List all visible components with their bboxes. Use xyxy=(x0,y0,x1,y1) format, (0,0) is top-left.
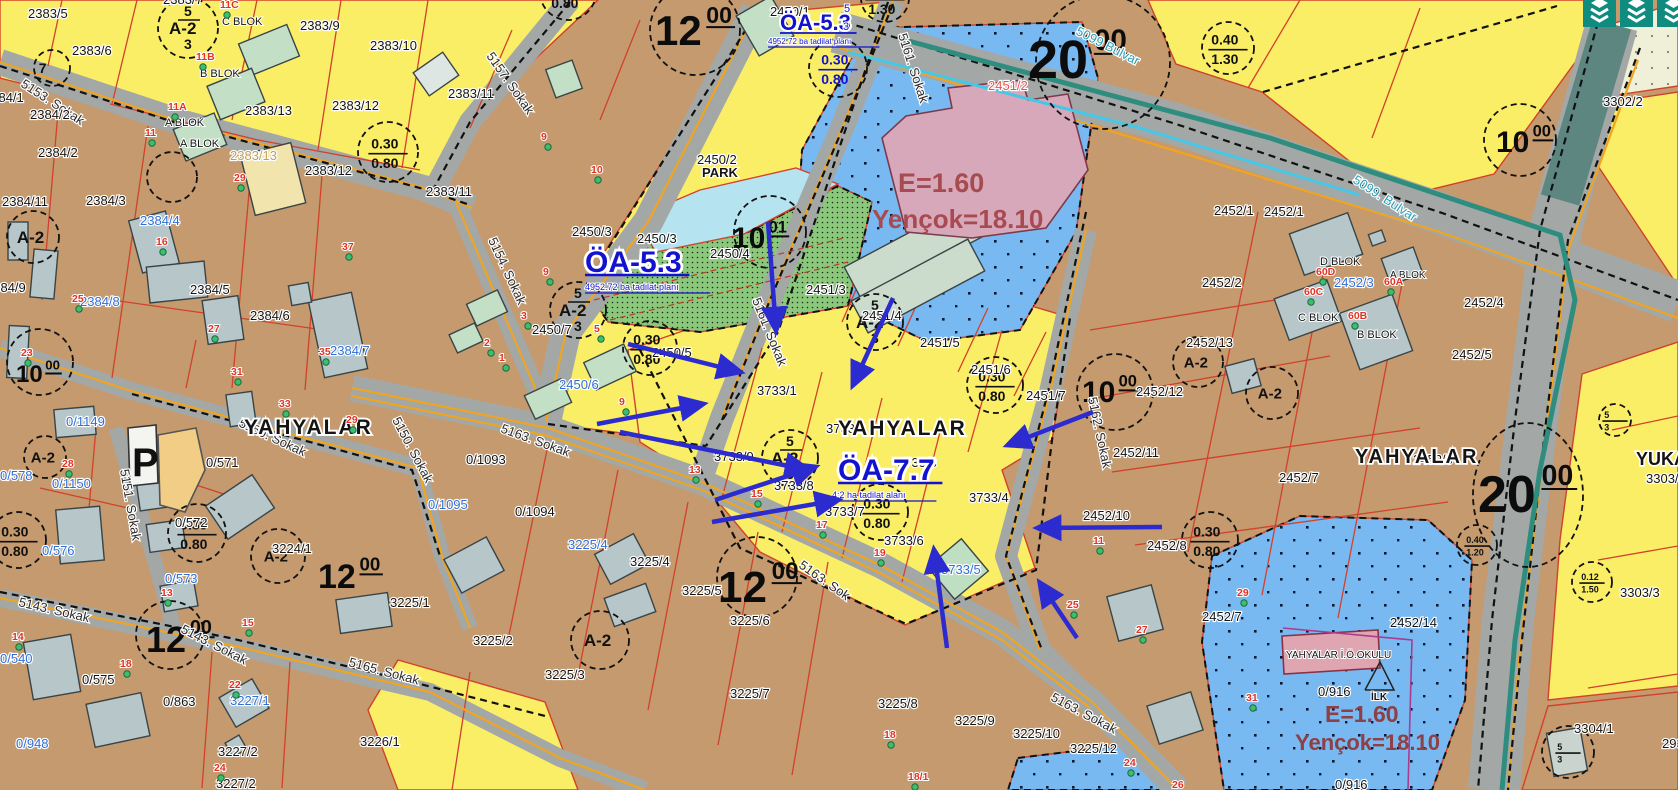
parcel-label: 2935 xyxy=(1662,736,1678,751)
survey-point-dot xyxy=(1250,705,1256,711)
parcel-label: 2383/10 xyxy=(370,38,417,53)
parcel-label: 4952.72 ba tadilat planı xyxy=(585,282,679,292)
circle-label: A-2 xyxy=(1184,354,1208,371)
survey-point-dot xyxy=(235,379,241,385)
parcel-label: 3733/7 xyxy=(825,504,865,519)
house-number-label: 33 xyxy=(279,398,291,410)
road-width-sup: 00 xyxy=(1541,460,1573,492)
parcel-label: 2383/13 xyxy=(230,148,277,163)
house-number-label: 29 xyxy=(1237,587,1249,599)
parcel-label: YUKARI xyxy=(1636,449,1678,469)
parcel-label: E=1.60 xyxy=(1325,701,1399,727)
circle-label: 0.80 xyxy=(1193,543,1220,559)
survey-point-dot xyxy=(165,600,171,606)
house-number-label: 18 xyxy=(884,729,896,741)
circle-label: 0.40 xyxy=(1466,535,1484,545)
circle-label: 5 xyxy=(1557,742,1562,752)
parcel-label: 2452/1 xyxy=(1264,204,1304,219)
survey-point-dot xyxy=(1140,637,1146,643)
survey-point-dot xyxy=(488,350,494,356)
house-number-label: 60B xyxy=(1348,310,1368,322)
parcel-label: 2452/14 xyxy=(1390,615,1437,630)
parcel-label: 0/576 xyxy=(42,543,75,558)
survey-point-dot xyxy=(238,185,244,191)
parcel-label: 2384/7 xyxy=(330,343,370,358)
survey-point-dot xyxy=(755,501,761,507)
circle-label: A-2 xyxy=(559,301,586,320)
house-number-label: 23 xyxy=(21,347,33,359)
house-number-label: 29 xyxy=(346,414,358,426)
circle-label: 1.30 xyxy=(1211,51,1238,67)
parcel-label: 3225/3 xyxy=(545,667,585,682)
parcel-label: 2450/6 xyxy=(559,377,599,392)
parcel-label: 3225/7 xyxy=(730,686,770,701)
layers-button-2[interactable] xyxy=(1620,0,1653,27)
circle-label: 3 xyxy=(184,36,192,52)
circle-label: A-2 xyxy=(17,228,44,247)
road-width-sup: 00 xyxy=(706,2,732,28)
parcel-label: 0/578 xyxy=(0,468,33,483)
parcel-label: 3225/4 xyxy=(630,554,670,569)
building xyxy=(30,249,58,299)
house-number-label: 5 xyxy=(594,323,600,335)
road-width-value: 10 xyxy=(1496,126,1529,159)
survey-point-dot xyxy=(16,644,22,650)
parcel-label: 0/1150 xyxy=(52,476,91,491)
survey-point-dot xyxy=(246,630,252,636)
circle-label: A-2 xyxy=(1258,385,1282,402)
zoning-map-viewport: 5A-2370.300.800.300.800.401.300.401.305A… xyxy=(0,0,1678,790)
circle-label: 0.30 xyxy=(1,524,28,540)
house-number-label: 11 xyxy=(145,127,156,139)
survey-point-dot xyxy=(218,775,224,781)
house-number-label: 31 xyxy=(231,366,243,378)
parcel-label: YAHYALAR xyxy=(838,417,967,440)
parcel-label: 2383/13 xyxy=(245,103,292,118)
parcel-label: PARK xyxy=(702,165,738,180)
parcel-label: 3733/6 xyxy=(884,533,924,548)
parcel-label: 3225/2 xyxy=(473,633,513,648)
parcel-label: 2452/11 xyxy=(1113,445,1159,460)
parcel-label: 2452/10 xyxy=(1083,508,1130,523)
parcel-label: 2451/6 xyxy=(971,362,1011,377)
survey-point-dot xyxy=(888,742,894,748)
parcel-label: 0/1095 xyxy=(428,497,468,512)
road-width-sup: 00 xyxy=(1119,372,1137,390)
circle-label: 0.80 xyxy=(978,388,1005,404)
parcel-label: 2383/5 xyxy=(28,6,68,21)
survey-point-dot xyxy=(149,140,155,146)
house-number-label: 18/1 xyxy=(908,771,929,783)
survey-point-dot xyxy=(1097,548,1103,554)
road-width-sup: 00 xyxy=(359,553,380,574)
circle-label: A-2 xyxy=(31,449,55,466)
parcel-label: 2452/2 xyxy=(1202,275,1242,290)
parcel-label: 3733/1 xyxy=(757,383,797,398)
parcel-label: 5 xyxy=(844,3,850,15)
survey-point-dot xyxy=(323,359,329,365)
annotation-arrow xyxy=(1038,527,1162,528)
house-number-label: 25 xyxy=(72,293,84,305)
parcel-label: 2384/8 xyxy=(80,294,120,309)
survey-point-dot xyxy=(623,409,629,415)
circle-label: 3 xyxy=(574,318,582,334)
house-number-label: 9 xyxy=(541,131,547,143)
house-number-label: 14 xyxy=(12,631,24,643)
house-number-label: 2 xyxy=(484,337,490,349)
survey-point-dot xyxy=(525,323,531,329)
parcel-label: C BLOK xyxy=(1298,312,1339,324)
survey-point-dot xyxy=(212,336,218,342)
house-number-label: 11B xyxy=(196,51,215,63)
survey-point-dot xyxy=(1308,299,1314,305)
parcel-label: A BLOK xyxy=(165,117,205,129)
parcel-label: 2450/7 xyxy=(532,322,572,337)
survey-point-dot xyxy=(283,411,289,417)
parcel-label: 3224/1 xyxy=(272,541,312,556)
parcel-label: 2384/5 xyxy=(190,282,230,297)
house-number-label: 13 xyxy=(689,464,701,476)
circle-label: 0.80 xyxy=(863,515,890,531)
parcel-label: 3225/9 xyxy=(955,713,995,728)
parcel-label: 3303/4 xyxy=(1646,471,1678,486)
survey-point-dot xyxy=(1128,770,1134,776)
circle-label: 1.30 xyxy=(868,1,895,17)
survey-point-dot xyxy=(1388,289,1394,295)
parcel-label: YAHYALAR İ.Ö.OKULU xyxy=(1286,648,1391,661)
parcel-label: Yençok=18.10 xyxy=(872,204,1043,234)
parcel-label: 2384/6 xyxy=(250,308,290,323)
parcel-label: YAHYALAR xyxy=(1355,446,1478,468)
parcel-label: 3 xyxy=(843,21,849,33)
parcel-label: 3225/6 xyxy=(730,613,770,628)
parcel-label: 3304/1 xyxy=(1574,721,1614,736)
parcel-label: 2383/12 xyxy=(332,98,379,113)
parcel-label: 2452/8 xyxy=(1147,538,1187,553)
house-number-label: 35 xyxy=(319,346,331,358)
circle-label: 5 xyxy=(1604,410,1609,420)
parcel-label: B BLOK xyxy=(1357,329,1397,341)
parcel-label: 3225/12 xyxy=(1070,741,1117,756)
parcel-label: 2450/3 xyxy=(637,231,677,246)
layers-button-3[interactable] xyxy=(1657,0,1678,27)
circle-label: 0.30 xyxy=(821,52,848,68)
circle-label: 7 xyxy=(39,60,47,76)
parcel-label: 0/916 xyxy=(1335,777,1368,790)
parcel-label: 0/863 xyxy=(163,694,196,709)
parcel-label: 2451/5 xyxy=(920,335,960,350)
zoning-map: 5A-2370.300.800.300.800.401.300.401.305A… xyxy=(0,0,1678,790)
road-width-value: 20 xyxy=(1478,466,1536,524)
house-number-label: 60A xyxy=(1384,276,1404,288)
parcel-label: 3225/5 xyxy=(682,583,722,598)
house-number-label: 9 xyxy=(543,266,549,278)
parcel-label: 2383/11 xyxy=(448,86,494,101)
parcel-label: 4952.72 ba tadilat planı xyxy=(768,37,851,46)
house-number-label: 24 xyxy=(214,762,226,774)
parcel-label: 0/575 xyxy=(82,672,115,687)
circle-label: 0.80 xyxy=(180,536,207,552)
survey-point-dot xyxy=(547,279,553,285)
parcel-label: 2383/9 xyxy=(300,18,340,33)
house-number-label: 27 xyxy=(208,323,220,335)
parcel-label: 3227/2 xyxy=(218,744,258,759)
survey-point-dot xyxy=(693,477,699,483)
parcel-label: 2384/11 xyxy=(2,194,48,209)
parcel-label: 4:2 ha tadilat alanı xyxy=(832,490,906,500)
parcel-label: 3303/3 xyxy=(1620,585,1660,600)
road-width-value: 12 xyxy=(146,619,186,660)
parcel-label: 2450/3 xyxy=(572,224,612,239)
survey-point-dot xyxy=(346,254,352,260)
survey-point-dot xyxy=(598,336,604,342)
parcel-label: 3302/2 xyxy=(1603,94,1643,109)
house-number-label: 27 xyxy=(1136,624,1148,636)
parcel-label: 2451/3 xyxy=(806,282,846,297)
parcel-label: Yençok=18.10 xyxy=(1295,730,1440,755)
circle-label: A-2 xyxy=(584,631,611,650)
circle-label: 0.80 xyxy=(371,155,398,171)
circle-label: 5 xyxy=(786,433,794,449)
circle-label: 1.20 xyxy=(1466,547,1484,557)
house-number-label: 25 xyxy=(1067,599,1079,611)
parcel-label: ÖA-5.3 xyxy=(780,10,851,35)
parcel-label: 2450/4 xyxy=(710,246,750,261)
house-number-label: 15 xyxy=(242,617,254,629)
survey-point-dot xyxy=(912,784,918,790)
parcel-label: 2451/2 xyxy=(988,78,1028,93)
house-number-label: 24 xyxy=(1124,757,1136,769)
road-width-sup: 00 xyxy=(1533,122,1551,140)
parcel-label: P xyxy=(132,441,159,485)
house-number-label: 19 xyxy=(874,547,886,559)
layers-button-1[interactable] xyxy=(1583,0,1616,27)
circle-label: 0.80 xyxy=(551,0,578,11)
road-width-value: 12 xyxy=(318,558,356,596)
survey-point-dot xyxy=(1352,323,1358,329)
circle-label: 0.80 xyxy=(1,543,28,559)
parcel-label: 3225/8 xyxy=(878,696,918,711)
parcel-label: 2452/3 xyxy=(1334,275,1374,290)
parcel-label: 2452/1 xyxy=(1214,203,1254,218)
survey-point-dot xyxy=(1241,600,1247,606)
house-number-label: 13 xyxy=(161,587,173,599)
road-width-sup: 01 xyxy=(769,218,787,236)
parcel-label: 0/916 xyxy=(1318,684,1351,699)
parcel-label: 2452/7 xyxy=(1279,470,1319,485)
parcel-label: 2384/2 xyxy=(38,145,78,160)
parcel-label: 0/1093 xyxy=(466,452,506,467)
parcel-label: 2383/7 xyxy=(163,0,203,7)
circle-label: 0.12 xyxy=(1581,572,1599,582)
building xyxy=(23,634,80,699)
house-number-label: 11 xyxy=(1093,535,1104,547)
house-number-label: 60D xyxy=(1316,266,1336,278)
parcel-label: 0/572 xyxy=(175,515,208,530)
parcel-label: 2383/11 xyxy=(426,184,472,199)
survey-point-dot xyxy=(878,560,884,566)
survey-point-dot xyxy=(66,471,72,477)
parcel-label: 3226/1 xyxy=(360,734,400,749)
survey-point-dot xyxy=(545,144,551,150)
house-number-label: 16 xyxy=(156,236,168,248)
parcel-label: 3225/1 xyxy=(390,595,430,610)
parcel-label: 2452/7 xyxy=(1202,609,1242,624)
parcel-label: 2452/4 xyxy=(1464,295,1504,310)
circle-label: 3 xyxy=(1557,754,1562,764)
circle-label: 0.30 xyxy=(371,136,398,152)
parcel-label: 3733/5 xyxy=(941,562,981,577)
parcel-label: 2384/3 xyxy=(86,193,126,208)
circle-label: 0.40 xyxy=(1211,32,1238,48)
parcel-label: B BLOK xyxy=(200,68,240,80)
parcel-label: 2384/9 xyxy=(0,280,26,295)
house-number-label: 18 xyxy=(120,658,132,670)
survey-point-dot xyxy=(25,360,31,366)
survey-point-dot xyxy=(503,365,509,371)
survey-point-dot xyxy=(124,671,130,677)
house-number-label: 9 xyxy=(619,396,625,408)
parcel-label: 2384/2 xyxy=(30,107,70,122)
parcel-label: 0/948 xyxy=(16,736,49,751)
house-number-label: 29 xyxy=(234,172,246,184)
building xyxy=(202,296,244,345)
circle-label: 1.50 xyxy=(1581,584,1599,594)
house-number-label: 10 xyxy=(591,164,603,176)
parcel-label: 2383/12 xyxy=(305,163,352,178)
road-width-sup: 00 xyxy=(45,358,60,373)
house-number-label: 37 xyxy=(342,241,354,253)
parcel-label: E=1.60 xyxy=(898,168,984,198)
house-number-label: 1 xyxy=(499,352,505,364)
parcel-label: A BLOK xyxy=(180,138,220,150)
survey-point-dot xyxy=(160,249,166,255)
road-width-value: 12 xyxy=(718,563,767,612)
parcel-label: 0/1094 xyxy=(515,504,555,519)
survey-point-dot xyxy=(595,177,601,183)
building xyxy=(336,593,392,634)
circle-label: 0.30 xyxy=(1193,524,1220,540)
parcel-label: 3225/4 xyxy=(568,537,608,552)
survey-point-dot xyxy=(233,692,239,698)
parcel-label: 0/1149 xyxy=(66,414,105,429)
house-number-label: 26 xyxy=(1172,779,1184,790)
parcel-label: 0/573 xyxy=(165,571,198,586)
parcel-label: 3225/10 xyxy=(1013,726,1060,741)
parcel-label: 2452/5 xyxy=(1452,347,1492,362)
parcel-label: 0/540 xyxy=(0,651,33,666)
house-number-label: 11C xyxy=(220,0,239,11)
survey-point-dot xyxy=(200,64,206,70)
house-number-label: 3 xyxy=(521,310,527,322)
parcel-label: 2384/1 xyxy=(0,90,24,105)
house-number-label: 11A xyxy=(168,101,187,113)
house-number-label: 28 xyxy=(62,458,74,470)
road-width-value: 12 xyxy=(655,7,702,54)
house-number-label: 17 xyxy=(816,519,828,531)
road-width-sup: 00 xyxy=(772,558,799,585)
parcel-label: 2452/12 xyxy=(1136,384,1183,399)
parcel-label: 2384/4 xyxy=(140,213,180,228)
circle-label: A-2 xyxy=(169,19,196,38)
circle-label: 0.80 xyxy=(821,71,848,87)
survey-point-dot xyxy=(224,12,230,18)
survey-point-dot xyxy=(1320,279,1326,285)
survey-point-dot xyxy=(172,114,178,120)
survey-point-dot xyxy=(350,427,356,433)
parcel-label: 3733/4 xyxy=(969,490,1009,505)
parcel-label: 2452/13 xyxy=(1186,335,1233,350)
survey-point-dot xyxy=(1071,612,1077,618)
parcel-label: 0/571 xyxy=(206,455,239,470)
house-number-label: 60C xyxy=(1304,286,1324,298)
survey-point-dot xyxy=(820,532,826,538)
building xyxy=(288,282,311,305)
parcel-label: 2451/7 xyxy=(1026,388,1066,403)
survey-point-dot xyxy=(76,306,82,312)
circle-label: 5 xyxy=(574,285,582,301)
parcel-label: 2383/6 xyxy=(72,43,112,58)
circle-label: 3 xyxy=(1604,422,1609,432)
house-number-label: 22 xyxy=(229,679,241,691)
house-number-label: 31 xyxy=(1246,692,1258,704)
